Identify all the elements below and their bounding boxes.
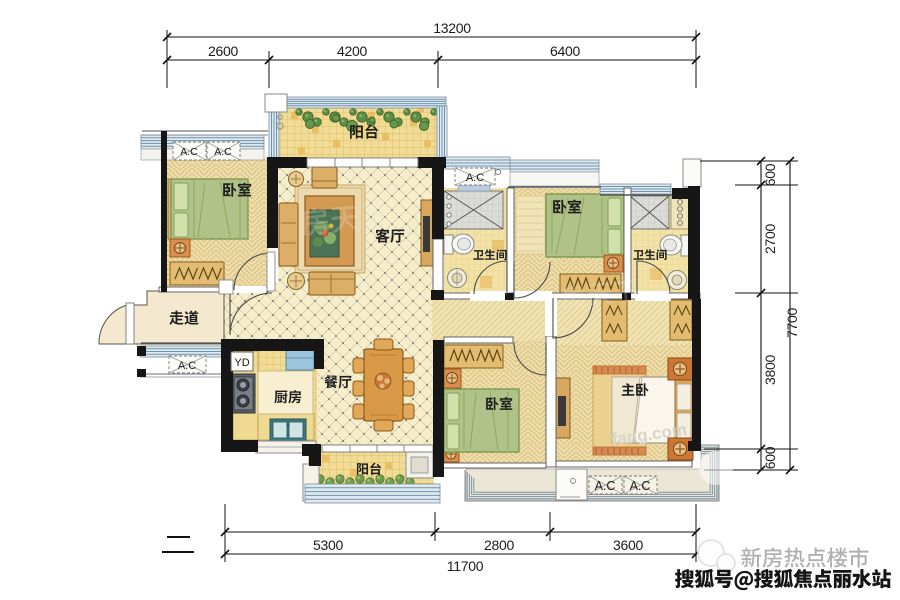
svg-text:3600: 3600 (613, 537, 643, 553)
svg-text:600: 600 (762, 446, 778, 469)
svg-text:13200: 13200 (433, 20, 471, 36)
svg-text:YD: YD (234, 357, 249, 369)
svg-text:A.C: A.C (178, 360, 196, 372)
svg-text:A.C: A.C (466, 172, 484, 184)
svg-text:2600: 2600 (208, 43, 238, 59)
svg-text:11700: 11700 (447, 558, 484, 574)
svg-text:A.C: A.C (595, 479, 616, 493)
svg-text:2800: 2800 (484, 537, 514, 553)
svg-text:4200: 4200 (337, 43, 367, 59)
svg-text:3800: 3800 (762, 355, 778, 385)
svg-text:5300: 5300 (313, 537, 343, 553)
svg-text:2700: 2700 (762, 224, 778, 254)
svg-text:600: 600 (762, 163, 778, 186)
svg-text:A.C: A.C (214, 146, 232, 158)
svg-text:7700: 7700 (784, 308, 800, 338)
svg-text:A.C: A.C (180, 146, 198, 158)
svg-text:6400: 6400 (550, 43, 580, 59)
svg-text:A.C: A.C (630, 479, 651, 493)
